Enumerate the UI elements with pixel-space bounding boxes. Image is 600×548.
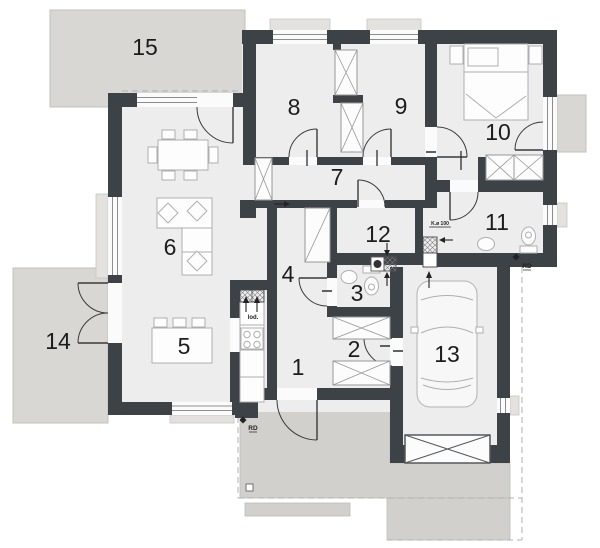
rain-drain-east: RD bbox=[522, 263, 532, 270]
garage bbox=[405, 281, 490, 463]
window-sill bbox=[367, 19, 421, 31]
wardrobe-room-10-a bbox=[486, 155, 514, 180]
kitchen-flue bbox=[240, 290, 264, 302]
wardrobe-room-2-upper bbox=[333, 317, 390, 339]
garage-door bbox=[405, 435, 490, 463]
toilet-room-11 bbox=[520, 227, 537, 253]
chimney-flue bbox=[423, 237, 437, 267]
floor-plan-page: 123456789101112131415K.ø 100RDRDlod. bbox=[0, 0, 600, 548]
car-mirror bbox=[411, 327, 418, 333]
rain-drain-south: RD bbox=[248, 425, 258, 432]
window-sill bbox=[557, 203, 567, 227]
room-label-3: 3 bbox=[351, 280, 364, 306]
room-label-12: 12 bbox=[365, 221, 391, 247]
window-sill bbox=[510, 396, 519, 415]
window-sill bbox=[96, 194, 108, 278]
room-label-7: 7 bbox=[331, 164, 344, 190]
fridge-label: lod. bbox=[248, 315, 259, 321]
room-label-5: 5 bbox=[178, 333, 191, 359]
floor-plan-drawing: 123456789101112131415K.ø 100RDRDlod. bbox=[0, 0, 600, 548]
attic-ladder-closet bbox=[305, 208, 330, 262]
washing-machine bbox=[371, 257, 384, 271]
double-bed bbox=[450, 44, 542, 120]
room-label-2: 2 bbox=[348, 336, 361, 362]
wardrobe-room-2-lower bbox=[333, 361, 390, 385]
wardrobe-corridor bbox=[255, 158, 272, 200]
room-label-15: 15 bbox=[132, 34, 158, 60]
wardrobe-8-9-lower bbox=[341, 103, 363, 152]
sink-room-11 bbox=[478, 238, 495, 251]
wardrobe-8-9-upper bbox=[335, 50, 357, 95]
drain-box bbox=[246, 484, 253, 491]
window-sill bbox=[170, 415, 234, 423]
car-mirror bbox=[476, 327, 483, 333]
room-label-9: 9 bbox=[395, 93, 408, 119]
room-label-10: 10 bbox=[485, 119, 511, 145]
wardrobe-room-10-b bbox=[514, 155, 543, 180]
bedroom-terrace-area bbox=[557, 95, 586, 152]
room-label-8: 8 bbox=[288, 94, 301, 120]
room-label-6: 6 bbox=[164, 234, 177, 260]
window-sill bbox=[270, 19, 330, 31]
vent-box bbox=[384, 257, 396, 271]
path-step bbox=[245, 503, 350, 516]
room-label-11: 11 bbox=[485, 209, 509, 235]
room-label-4: 4 bbox=[282, 261, 295, 287]
room-label-13: 13 bbox=[434, 341, 460, 367]
driveway-paving bbox=[387, 498, 510, 540]
room-label-14: 14 bbox=[45, 328, 71, 354]
room-label-1: 1 bbox=[292, 354, 305, 380]
flue-label: K.ø 100 bbox=[431, 221, 449, 227]
